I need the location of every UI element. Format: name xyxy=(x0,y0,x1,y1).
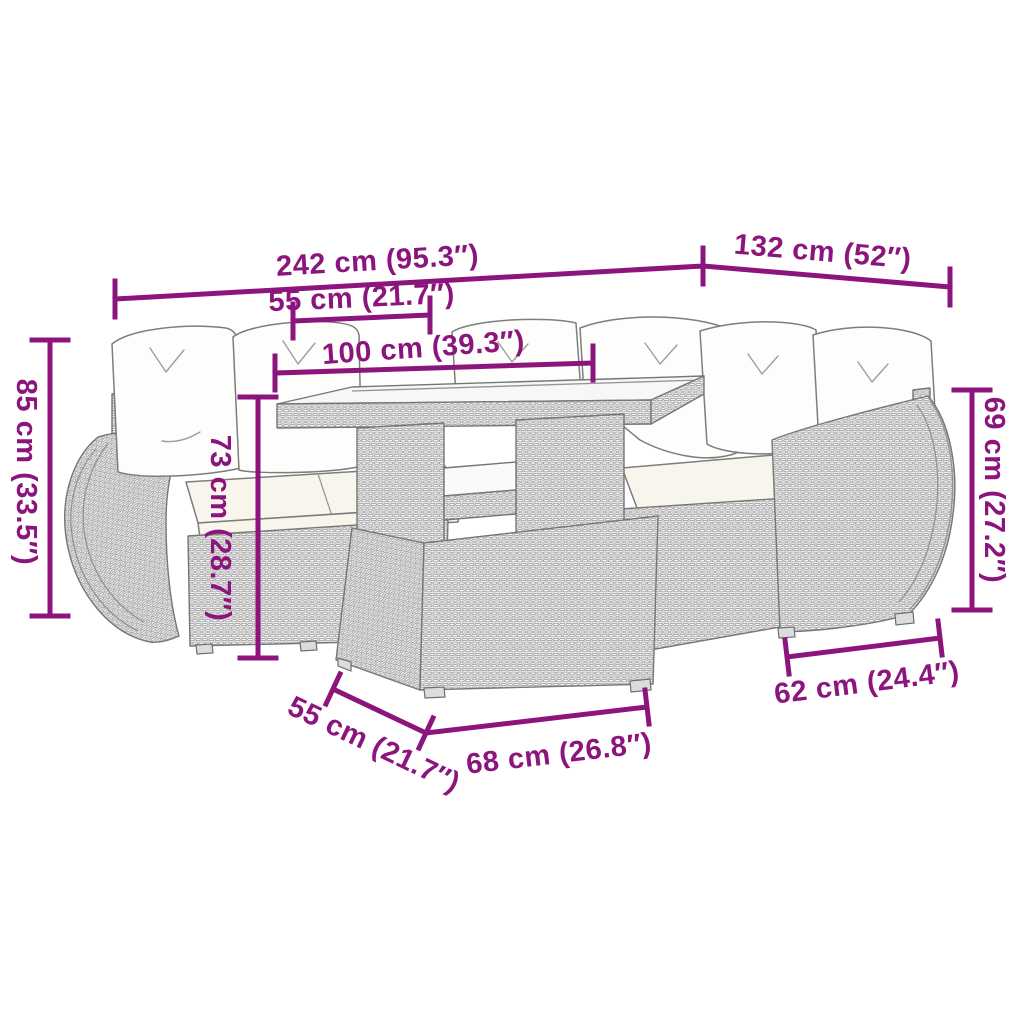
dimension-line xyxy=(426,690,649,733)
dimension-label-table-height: 73 cm (28.7″) xyxy=(204,435,236,621)
dimension-label-back-height: 85 cm (33.5″) xyxy=(10,379,42,565)
furniture-illustration: 242 cm (95.3″) 132 cm (52″) 55 cm (21.7″… xyxy=(0,0,1024,1024)
right-armrest xyxy=(772,396,955,631)
dimension-arm-height: 69 cm (27.2″) xyxy=(954,390,1010,610)
furniture-foot xyxy=(424,687,445,698)
furniture-foot xyxy=(895,612,914,625)
dimension-label-seat-depth: 55 cm (21.7″) xyxy=(268,278,456,318)
dimension-module-width: 62 cm (24.4″) xyxy=(772,621,961,711)
product-dimension-diagram: 242 cm (95.3″) 132 cm (52″) 55 cm (21.7″… xyxy=(0,0,1024,1024)
furniture-foot xyxy=(196,644,213,654)
dimension-line xyxy=(703,266,950,305)
ottoman-front xyxy=(420,516,658,690)
ottoman xyxy=(336,516,658,698)
dimension-back-height: 85 cm (33.5″) xyxy=(10,340,68,616)
dimension-label-module-width: 62 cm (24.4″) xyxy=(772,656,961,711)
dimension-label-overall-width: 242 cm (95.3″) xyxy=(275,239,480,283)
furniture-foot xyxy=(300,641,317,651)
dimension-right-side-width: 132 cm (52″) xyxy=(703,229,950,305)
furniture-foot xyxy=(778,627,795,638)
furniture-foot xyxy=(630,679,651,692)
table-shelf-edge xyxy=(444,490,516,520)
dimension-label-ottoman-width: 68 cm (26.8″) xyxy=(465,727,654,781)
dimension-label-arm-height: 69 cm (27.2″) xyxy=(978,397,1010,583)
